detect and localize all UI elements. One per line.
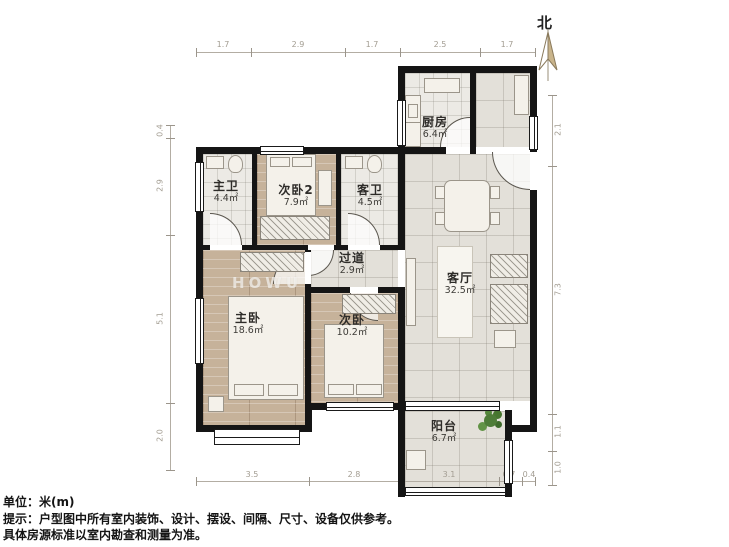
door-gap-master-bath (210, 245, 242, 250)
wall-balcony-left (398, 403, 405, 497)
room-label-guest-bath: 客卫 4.5㎡ (340, 184, 400, 209)
wall-kitchen-right (470, 66, 476, 154)
window-balcony-right (504, 440, 513, 484)
dim-tick (196, 477, 197, 486)
dining-chair (435, 212, 445, 225)
door-gap-guest-bath (348, 245, 380, 250)
dim-tick (345, 48, 346, 57)
master-pillow (268, 384, 298, 396)
dim-top-5: 1.7 (492, 40, 522, 49)
window-master-left (195, 298, 204, 364)
entry-shoe-cabinet (514, 75, 529, 115)
dim-tick (400, 48, 401, 57)
dining-chair (490, 186, 500, 199)
master-wardrobe (240, 252, 304, 272)
dimension-line-left (170, 125, 171, 470)
balcony-slider-door (405, 401, 500, 411)
footer-notes: 单位：米(m) 提示：户型图中所有室内装饰、设计、摆设、间隔、尺寸、设备仅供参考… (3, 494, 399, 544)
wall-balcony-connector (505, 425, 537, 432)
master-pillow (234, 384, 264, 396)
room-area: 4.4㎡ (196, 194, 256, 205)
masterbath-sink (206, 156, 224, 169)
room-label-living-room: 客厅 32.5㎡ (430, 272, 490, 297)
room-name: 厨房 (405, 116, 465, 130)
window-entry-right (529, 116, 538, 150)
window-bedroom-bottom (326, 402, 394, 411)
guestbath-toilet (367, 155, 382, 173)
dim-tick (548, 451, 557, 452)
dim-left-3: 5.1 (156, 307, 165, 331)
bedroom-pillow (356, 384, 382, 395)
dining-table (444, 180, 490, 232)
bedroom-wardrobe (342, 294, 396, 314)
window-bedroom2-top (260, 146, 304, 155)
room-label-master-bath: 主卫 4.4㎡ (196, 180, 256, 205)
floorplan-image: 厨房 6.4㎡ 主卫 4.4㎡ 次卧2 7.9㎡ 客卫 4.5㎡ 过道 2.9㎡… (0, 0, 729, 547)
dim-tick (166, 470, 175, 471)
bedroom2-wardrobe (260, 216, 330, 240)
sofa-seat (490, 254, 528, 278)
door-gap-master-bed (305, 252, 311, 284)
room-area: 6.7㎡ (414, 434, 474, 445)
dim-right-3: 1.1 (554, 420, 563, 444)
dim-tick (548, 95, 557, 96)
dim-left-4: 2.0 (156, 424, 165, 448)
dim-top-1: 1.7 (208, 40, 238, 49)
dim-top-4: 2.5 (425, 40, 455, 49)
room-name: 阳台 (414, 420, 474, 434)
dim-bottom-1: 3.5 (237, 470, 267, 479)
tip-line-2: 具体房源标准以室内勘查和测量为准。 (3, 527, 399, 544)
room-area: 6.4㎡ (405, 130, 465, 141)
door-gap-bedroom2 (308, 245, 334, 250)
room-area: 18.6㎡ (218, 326, 278, 337)
room-label-bedroom: 次卧 10.2㎡ (322, 314, 382, 339)
wall-kitchen-bottom (398, 147, 446, 154)
bedroom-pillow (328, 384, 354, 395)
dim-tick (196, 48, 197, 57)
tv-cabinet (406, 258, 416, 326)
dim-tick (166, 403, 175, 404)
dim-right-4: 1.0 (554, 456, 563, 480)
dim-bottom-2: 2.8 (339, 470, 369, 479)
dim-tick (166, 125, 175, 126)
door-gap-bedroom (350, 287, 378, 293)
dining-chair (435, 186, 445, 199)
dimension-line-top (196, 52, 535, 53)
dim-left-2: 2.9 (156, 174, 165, 198)
dim-top-3: 1.7 (357, 40, 387, 49)
room-name: 过道 (322, 252, 382, 266)
unit-note: 单位：米(m) (3, 494, 399, 511)
balcony-plant-icon (484, 414, 497, 427)
room-area: 2.9㎡ (322, 266, 382, 277)
room-name: 主卫 (196, 180, 256, 194)
kitchen-boiler-box (424, 78, 460, 93)
dim-tick (548, 485, 557, 486)
dim-tick (309, 477, 310, 486)
balcony-box (406, 450, 426, 470)
dim-top-2: 2.9 (283, 40, 313, 49)
dim-bottom-3: 3.1 (434, 470, 464, 479)
room-name: 主卧 (218, 312, 278, 326)
wall-bedroom-living (398, 292, 405, 403)
bedroom2-pillow (270, 157, 290, 167)
watermark: HOWU (232, 274, 302, 292)
guestbath-sink (345, 156, 363, 169)
room-label-kitchen: 厨房 6.4㎡ (405, 116, 465, 141)
room-label-master-bed: 主卧 18.6㎡ (218, 312, 278, 337)
tip-line-1: 提示：户型图中所有室内装饰、设计、摆设、间隔、尺寸、设备仅供参考。 (3, 511, 399, 528)
dim-left-1: 0.4 (156, 119, 165, 143)
room-area: 10.2㎡ (322, 328, 382, 339)
room-area: 32.5㎡ (430, 286, 490, 297)
room-name: 客厅 (430, 272, 490, 286)
dimension-line-bottom (196, 481, 535, 482)
room-name: 客卫 (340, 184, 400, 198)
bedroom2-pillow (292, 157, 312, 167)
dim-tick (548, 414, 557, 415)
room-label-corridor: 过道 2.9㎡ (322, 252, 382, 277)
dim-tick (166, 235, 175, 236)
north-arrow-icon (533, 28, 563, 82)
room-name: 次卧 (322, 314, 382, 328)
room-label-balcony: 阳台 6.7㎡ (414, 420, 474, 445)
room-area: 7.9㎡ (266, 198, 326, 209)
bay-window-master (214, 429, 300, 445)
dim-right-2: 7.3 (554, 278, 563, 302)
dim-tick (548, 166, 557, 167)
master-nightstand (208, 396, 224, 412)
room-label-bedroom2: 次卧2 7.9㎡ (266, 184, 326, 209)
dim-tick (166, 138, 175, 139)
wall-kitchen-top (398, 66, 537, 73)
dim-bottom-5: 0.4 (520, 470, 538, 479)
room-name: 次卧2 (266, 184, 326, 198)
dining-chair (490, 212, 500, 225)
masterbath-toilet (228, 155, 243, 173)
dim-tick (480, 48, 481, 57)
dim-tick (251, 48, 252, 57)
room-area: 4.5㎡ (340, 198, 400, 209)
window-balcony-bottom (405, 487, 506, 496)
sofa-side-table (494, 330, 516, 348)
dim-right-1: 2.1 (554, 118, 563, 142)
door-gap-entrance (530, 152, 537, 190)
sofa-seat (490, 284, 528, 324)
